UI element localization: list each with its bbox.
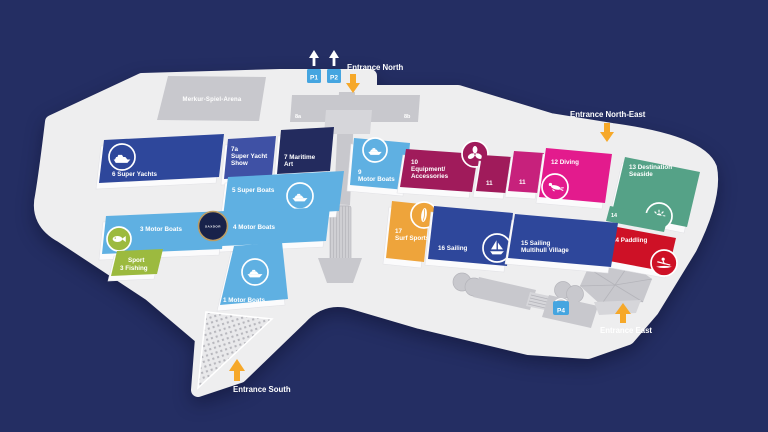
hall-17-label-line1: 17 — [395, 228, 403, 235]
entrance-north-label: Entrance North — [347, 63, 404, 72]
entrance-south-label: Entrance South — [233, 385, 291, 394]
hall-10-label-line3: Accessories — [411, 173, 449, 180]
hall-7-label-line1: 7 Maritime — [284, 154, 316, 161]
fairground-map: Merkur-Spiel-Arena 8a 8b 6 Super Yachts — [0, 0, 768, 432]
hall-1-label: 1 Motor Boats — [223, 297, 265, 304]
hall-12-label: 12 Diving — [551, 159, 579, 166]
parking-p2-label: P2 — [330, 75, 338, 82]
hall-16-sailing[interactable]: 16 Sailing — [425, 206, 513, 272]
parking-p1-label: P1 — [310, 75, 318, 82]
hall-16-label: 16 Sailing — [438, 245, 468, 252]
entrance-north-arrow — [350, 74, 356, 84]
entrance-north-east-label: Entrance North-East — [570, 110, 646, 119]
hall-6-label: 6 Super Yachts — [112, 171, 158, 178]
hall-17-label-line2: Surf Sports — [395, 235, 430, 242]
entrance-east-label: Entrance East — [600, 326, 652, 335]
hall-7a-label-line2: Super Yacht — [231, 153, 268, 160]
sport-fishing-label-line2: 3 Fishing — [120, 265, 148, 272]
saxdor-badge[interactable]: SAXDOR — [199, 212, 228, 241]
hall-4-label: 4 Motor Boats — [233, 224, 275, 231]
entrance-south-arrow — [234, 370, 240, 381]
entrance-east-arrow — [620, 313, 626, 323]
parking-p4[interactable]: P4 — [553, 299, 569, 315]
hall-9-label-line1: 9 — [358, 169, 362, 176]
parking-arrow-shaft — [313, 57, 316, 66]
arena-label: Merkur-Spiel-Arena — [183, 97, 242, 103]
hall-15-sailing-multihull-village[interactable]: 15 Sailing Multihull Village — [505, 214, 618, 273]
hall-10-label-line1: 10 — [411, 159, 419, 166]
hall-15-label-line2: Multihull Village — [521, 247, 569, 254]
hall-7-label-line2: Art — [284, 161, 294, 168]
parking-p4-label: P4 — [557, 308, 565, 315]
sport-fishing-label-line1: Sport — [128, 257, 145, 264]
hall-8b-label: 8b — [404, 114, 411, 120]
hall-8a-label: 8a — [295, 114, 302, 120]
hall-15-label-line1: 15 Sailing — [521, 240, 551, 247]
hall-3-label: 3 Motor Boats — [140, 226, 182, 233]
hall-9-label-line2: Motor Boats — [358, 176, 395, 183]
hall-13-label-line1: 13 Destination — [629, 164, 672, 171]
hall-7a-label-line3: Show — [231, 160, 248, 167]
hall-14-annex-label: 14 — [611, 213, 618, 219]
hall-11-west-label: 11 — [486, 180, 493, 187]
hall-11-east-label: 11 — [519, 179, 526, 186]
hall-12-diving[interactable]: 12 Diving — [536, 148, 612, 209]
hall-6-super-yachts[interactable]: 6 Super Yachts — [96, 134, 224, 189]
hall-13-label-line2: Seaside — [629, 171, 653, 178]
parking-arrow-shaft — [333, 57, 336, 66]
hall-10-label-line2: Equipment/ — [411, 166, 446, 173]
hall-7a-label-line1: 7a — [231, 146, 239, 153]
badge-label: SAXDOR — [205, 224, 221, 228]
hall-5-label: 5 Super Boats — [232, 187, 275, 194]
entrance-north-east-arrow — [604, 123, 610, 133]
hall-14-label: 14 Paddling — [612, 237, 647, 244]
